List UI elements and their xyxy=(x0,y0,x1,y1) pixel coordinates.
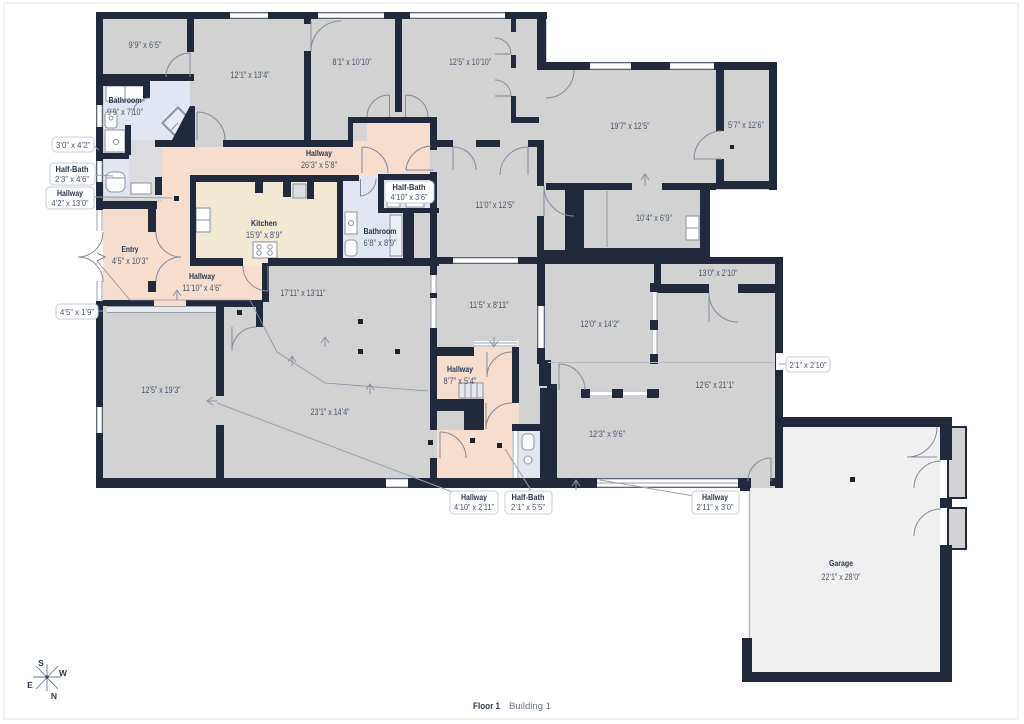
svg-text:Hallway: Hallway xyxy=(57,189,83,198)
svg-text:Hallway: Hallway xyxy=(189,272,215,281)
svg-text:26’3” x 5’8”: 26’3” x 5’8” xyxy=(301,160,337,170)
svg-text:2’1” x 5’5”: 2’1” x 5’5” xyxy=(511,503,545,512)
svg-text:10’4” x 6’9”: 10’4” x 6’9” xyxy=(636,213,672,223)
svg-text:E: E xyxy=(27,680,33,690)
svg-text:8’1” x 10’10”: 8’1” x 10’10” xyxy=(333,57,372,67)
svg-text:11’5” x 8’11”: 11’5” x 8’11” xyxy=(470,300,509,310)
svg-text:Garage: Garage xyxy=(829,559,853,568)
svg-text:4’10” x 3’6”: 4’10” x 3’6” xyxy=(391,193,428,202)
svg-text:12’5” x 19’3”: 12’5” x 19’3” xyxy=(142,385,181,395)
svg-text:S: S xyxy=(38,658,44,668)
svg-text:Bathroom: Bathroom xyxy=(364,227,397,236)
svg-text:Hallway: Hallway xyxy=(702,493,728,502)
svg-text:11’10” x 4’6”: 11’10” x 4’6” xyxy=(183,283,222,293)
svg-text:Building 1: Building 1 xyxy=(509,701,551,712)
svg-text:2’1” x 2’10”: 2’1” x 2’10” xyxy=(790,361,827,370)
svg-text:4’5” x 10’3”: 4’5” x 10’3” xyxy=(112,256,148,266)
svg-text:4’2” x 13’0”: 4’2” x 13’0” xyxy=(52,199,89,208)
svg-text:Entry: Entry xyxy=(122,245,139,254)
svg-text:Kitchen: Kitchen xyxy=(251,219,277,228)
svg-text:6’8” x 8’9”: 6’8” x 8’9” xyxy=(364,238,397,248)
svg-text:12’1” x 13’4”: 12’1” x 13’4” xyxy=(231,70,270,80)
svg-text:15’9” x 8’9”: 15’9” x 8’9” xyxy=(246,230,282,240)
svg-text:4’5” x 1’9”: 4’5” x 1’9” xyxy=(60,308,94,317)
svg-text:W: W xyxy=(59,668,68,678)
svg-text:11’0” x 12’5”: 11’0” x 12’5” xyxy=(476,200,515,210)
svg-text:Hallway: Hallway xyxy=(306,149,332,158)
svg-text:5’7” x 12’6”: 5’7” x 12’6” xyxy=(728,120,764,130)
svg-text:Half-Bath: Half-Bath xyxy=(393,183,426,192)
svg-text:8’7” x 5’4”: 8’7” x 5’4” xyxy=(444,376,477,386)
svg-text:9’9” x 6’5”: 9’9” x 6’5” xyxy=(129,40,162,50)
svg-text:13’0” x 2’10”: 13’0” x 2’10” xyxy=(699,268,738,278)
svg-text:N: N xyxy=(51,691,57,701)
svg-text:2’3” x 4’6”: 2’3” x 4’6” xyxy=(55,175,89,184)
svg-text:4’10” x 2’11”: 4’10” x 2’11” xyxy=(454,503,494,512)
svg-text:12’3” x 9’6”: 12’3” x 9’6” xyxy=(589,429,625,439)
svg-text:12’0” x 14’2”: 12’0” x 14’2” xyxy=(581,319,620,329)
svg-text:23’1” x 14’4”: 23’1” x 14’4” xyxy=(311,407,350,417)
svg-text:Hallway: Hallway xyxy=(461,493,487,502)
svg-text:2’11” x 3’0”: 2’11” x 3’0” xyxy=(697,503,734,512)
svg-text:19’7” x 12’5”: 19’7” x 12’5” xyxy=(611,121,650,131)
svg-text:Floor 1: Floor 1 xyxy=(473,701,501,712)
svg-text:17’11” x 13’11”: 17’11” x 13’11” xyxy=(281,288,326,298)
svg-text:12’5” x 10’10”: 12’5” x 10’10” xyxy=(449,57,491,67)
svg-text:3’0” x 4’2”: 3’0” x 4’2” xyxy=(56,141,90,150)
svg-text:Half-Bath: Half-Bath xyxy=(512,493,545,502)
svg-text:Bathroom: Bathroom xyxy=(109,96,142,105)
svg-text:22’1” x 28’0”: 22’1” x 28’0” xyxy=(822,572,861,582)
svg-text:12’6” x 21’1”: 12’6” x 21’1” xyxy=(696,380,735,390)
svg-text:9’9” x 7’10”: 9’9” x 7’10” xyxy=(107,107,143,117)
svg-text:Half-Bath: Half-Bath xyxy=(56,165,89,174)
svg-text:Hallway: Hallway xyxy=(447,365,473,374)
